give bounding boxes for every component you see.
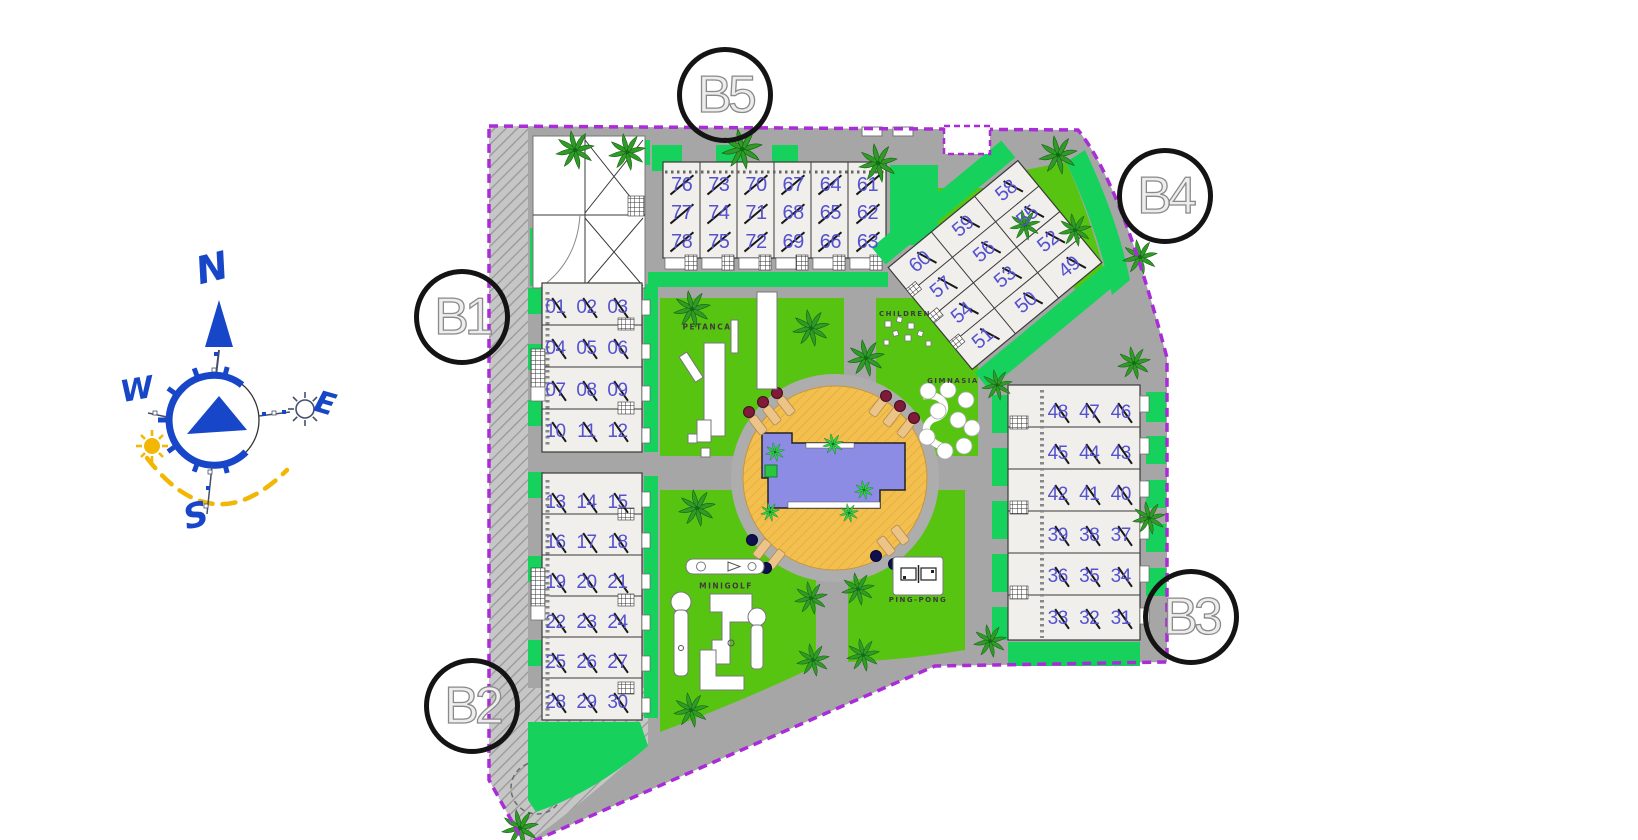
unit-number: 15 bbox=[607, 492, 627, 514]
unit-number: 69 bbox=[783, 231, 804, 254]
unit-cell: 48 bbox=[1042, 392, 1074, 433]
unit-cell: 16 bbox=[540, 523, 571, 563]
label-gimnasia: GIMNASIA bbox=[927, 377, 979, 385]
north-arrow bbox=[205, 300, 233, 347]
unit-number: 47 bbox=[1079, 402, 1099, 424]
unit-number: 40 bbox=[1111, 484, 1131, 506]
garden-b5-south bbox=[648, 272, 888, 287]
unit-cell: 14 bbox=[571, 483, 602, 523]
unit-number: 38 bbox=[1079, 525, 1099, 547]
block-badge-b1[interactable]: B1 bbox=[414, 269, 510, 365]
unit-number: 30 bbox=[607, 692, 627, 714]
unit-cell: 20 bbox=[571, 563, 602, 603]
unit-number: 14 bbox=[576, 492, 596, 514]
unit-cell: 37 bbox=[1105, 516, 1137, 557]
unit-number: 13 bbox=[545, 492, 565, 514]
unit-cell: 36 bbox=[1042, 557, 1074, 598]
unit-cell: 45 bbox=[1042, 433, 1074, 474]
unit-number: 28 bbox=[545, 692, 565, 714]
unit-cell: 21 bbox=[602, 563, 633, 603]
unit-number: 65 bbox=[820, 202, 841, 225]
unit-cell: 42 bbox=[1042, 474, 1074, 515]
unit-cell: 01 bbox=[540, 287, 571, 329]
unit-number: 29 bbox=[576, 692, 596, 714]
unit-cell: 63 bbox=[849, 228, 886, 257]
garden-b2-east bbox=[644, 476, 658, 718]
unit-cell: 09 bbox=[602, 370, 633, 412]
unit-cell: 12 bbox=[602, 412, 633, 454]
unit-cell: 76 bbox=[663, 171, 700, 200]
unit-cell: 15 bbox=[602, 483, 633, 523]
unit-cell: 24 bbox=[602, 603, 633, 643]
unit-number: 06 bbox=[607, 338, 627, 360]
unit-number: 21 bbox=[607, 572, 627, 594]
unit-number: 18 bbox=[607, 532, 627, 554]
unit-number: 09 bbox=[607, 380, 627, 402]
unit-cell: 13 bbox=[540, 483, 571, 523]
unit-cell: 62 bbox=[849, 200, 886, 229]
unit-cell: 71 bbox=[737, 200, 774, 229]
garden-b3-w4 bbox=[992, 554, 1008, 592]
unit-cell: 33 bbox=[1042, 598, 1074, 639]
unit-number: 03 bbox=[607, 297, 627, 319]
unit-number: 32 bbox=[1079, 608, 1099, 630]
unit-cell: 04 bbox=[540, 329, 571, 371]
unit-number: 24 bbox=[607, 612, 627, 634]
unit-cell: 46 bbox=[1105, 392, 1137, 433]
unit-cell: 72 bbox=[737, 228, 774, 257]
unit-cell: 44 bbox=[1074, 433, 1106, 474]
parasol bbox=[744, 407, 755, 418]
unit-cell: 19 bbox=[540, 563, 571, 603]
parasol bbox=[909, 413, 920, 424]
unit-number: 41 bbox=[1079, 484, 1099, 506]
unit-grid-b5: 767370676461777471686562787572696663 bbox=[663, 171, 886, 257]
unit-grid-b2: 131415161718192021222324252627282930 bbox=[540, 483, 633, 723]
unit-cell: 31 bbox=[1105, 598, 1137, 639]
unit-number: 61 bbox=[857, 174, 878, 197]
unit-cell: 26 bbox=[571, 643, 602, 683]
unit-number: 36 bbox=[1048, 566, 1068, 588]
unit-cell: 65 bbox=[812, 200, 849, 229]
parasol bbox=[895, 401, 906, 412]
label-petanca: PETANCA bbox=[682, 323, 731, 332]
unit-number: 20 bbox=[576, 572, 596, 594]
garden-b3-w2 bbox=[992, 448, 1008, 486]
unit-cell: 73 bbox=[700, 171, 737, 200]
garden-b3-w1 bbox=[992, 395, 1008, 433]
unit-number: 73 bbox=[708, 174, 729, 197]
unit-cell: 17 bbox=[571, 523, 602, 563]
parasol bbox=[881, 391, 892, 402]
unit-number: 67 bbox=[783, 174, 804, 197]
unit-cell: 25 bbox=[540, 643, 571, 683]
unit-cell: 43 bbox=[1105, 433, 1137, 474]
unit-number: 22 bbox=[545, 612, 565, 634]
unit-cell: 07 bbox=[540, 370, 571, 412]
pool-area bbox=[731, 374, 939, 582]
unit-cell: 06 bbox=[602, 329, 633, 371]
unit-cell: 28 bbox=[540, 683, 571, 723]
pool-planter bbox=[765, 465, 777, 477]
block-label: B3 bbox=[1163, 587, 1219, 647]
unit-number: 16 bbox=[545, 532, 565, 554]
block-badge-b3[interactable]: B3 bbox=[1143, 569, 1239, 665]
unit-cell: 08 bbox=[571, 370, 602, 412]
unit-cell: 66 bbox=[812, 228, 849, 257]
garden-b3-w3 bbox=[992, 501, 1008, 539]
site-plan-canvas: 767370676461777471686562787572696663 010… bbox=[0, 0, 1638, 840]
unit-cell: 67 bbox=[775, 171, 812, 200]
unit-number: 33 bbox=[1048, 608, 1068, 630]
unit-number: 11 bbox=[577, 421, 596, 443]
north-gate bbox=[944, 126, 990, 154]
unit-number: 77 bbox=[671, 202, 692, 225]
unit-cell: 02 bbox=[571, 287, 602, 329]
pool-step bbox=[788, 502, 880, 508]
unit-cell: 38 bbox=[1074, 516, 1106, 557]
block-label: B4 bbox=[1137, 166, 1193, 226]
unit-cell: 74 bbox=[700, 200, 737, 229]
unit-grid-b3: 484746454443424140393837363534333231 bbox=[1042, 392, 1137, 639]
block-label: B1 bbox=[434, 287, 490, 347]
unit-number: 49 bbox=[1054, 252, 1085, 283]
unit-cell: 23 bbox=[571, 603, 602, 643]
unit-cell: 22 bbox=[540, 603, 571, 643]
unit-number: 07 bbox=[545, 380, 565, 402]
unit-number: 78 bbox=[671, 231, 692, 254]
block-label: B5 bbox=[697, 65, 753, 125]
unit-number: 05 bbox=[576, 338, 596, 360]
unit-number: 51 bbox=[968, 323, 999, 354]
unit-cell: 11 bbox=[571, 412, 602, 454]
unit-number: 25 bbox=[545, 652, 565, 674]
unit-cell: 64 bbox=[812, 171, 849, 200]
unit-number: 31 bbox=[1111, 608, 1131, 630]
unit-number: 23 bbox=[576, 612, 596, 634]
parasol bbox=[747, 535, 758, 546]
unit-number: 63 bbox=[857, 231, 878, 254]
unit-number: 70 bbox=[745, 174, 766, 197]
unit-number: 04 bbox=[545, 338, 565, 360]
unit-number: 01 bbox=[545, 297, 565, 319]
block-badge-b4[interactable]: B4 bbox=[1117, 148, 1213, 244]
unit-number: 68 bbox=[783, 202, 804, 225]
unit-number: 19 bbox=[545, 572, 565, 594]
unit-number: 39 bbox=[1048, 525, 1068, 547]
parasol bbox=[871, 551, 882, 562]
unit-number: 44 bbox=[1079, 443, 1099, 465]
block-label: B2 bbox=[444, 676, 500, 736]
unit-number: 66 bbox=[820, 231, 841, 254]
unit-cell: 61 bbox=[849, 171, 886, 200]
unit-number: 50 bbox=[1011, 288, 1042, 319]
unit-number: 75 bbox=[708, 231, 729, 254]
parasol bbox=[758, 397, 769, 408]
unit-number: 10 bbox=[545, 421, 565, 443]
block-badge-b5[interactable]: B5 bbox=[677, 47, 773, 143]
unit-number: 46 bbox=[1111, 402, 1131, 424]
unit-number: 42 bbox=[1048, 484, 1068, 506]
driveway-hatch-west bbox=[489, 126, 528, 688]
unit-number: 48 bbox=[1048, 402, 1068, 424]
unit-number: 62 bbox=[857, 202, 878, 225]
unit-cell: 29 bbox=[571, 683, 602, 723]
block-badge-b2[interactable]: B2 bbox=[424, 658, 520, 754]
unit-cell: 32 bbox=[1074, 598, 1106, 639]
unit-number: 76 bbox=[671, 174, 692, 197]
ping-pong-table bbox=[893, 557, 943, 595]
unit-cell: 34 bbox=[1105, 557, 1137, 598]
unit-cell: 75 bbox=[700, 228, 737, 257]
unit-number: 17 bbox=[576, 532, 596, 554]
unit-number: 35 bbox=[1079, 566, 1099, 588]
unit-cell: 35 bbox=[1074, 557, 1106, 598]
unit-cell: 39 bbox=[1042, 516, 1074, 557]
site-plan-drawing bbox=[0, 0, 1638, 840]
unit-number: 08 bbox=[576, 380, 596, 402]
compass-west-label: W bbox=[118, 370, 157, 410]
unit-number: 34 bbox=[1111, 566, 1131, 588]
unit-number: 12 bbox=[607, 421, 627, 443]
unit-number: 64 bbox=[820, 174, 841, 197]
unit-cell: 03 bbox=[602, 287, 633, 329]
unit-number: 37 bbox=[1111, 525, 1131, 547]
unit-number: 27 bbox=[607, 652, 627, 674]
unit-cell: 18 bbox=[602, 523, 633, 563]
label-ping-pong: PING-PONG bbox=[889, 596, 947, 604]
unit-number: 43 bbox=[1111, 443, 1131, 465]
unit-number: 26 bbox=[576, 652, 596, 674]
unit-number: 45 bbox=[1048, 443, 1068, 465]
compass-rose bbox=[136, 300, 322, 514]
unit-cell: 27 bbox=[602, 643, 633, 683]
unit-cell: 70 bbox=[737, 171, 774, 200]
unit-number: 72 bbox=[745, 231, 766, 254]
unit-cell: 40 bbox=[1105, 474, 1137, 515]
unit-number: 71 bbox=[745, 202, 766, 225]
unit-grid-b1: 010203040506070809101112 bbox=[540, 287, 633, 453]
unit-cell: 69 bbox=[775, 228, 812, 257]
label-children: CHILDREN bbox=[879, 310, 931, 318]
unit-number: 74 bbox=[708, 202, 729, 225]
unit-cell: 47 bbox=[1074, 392, 1106, 433]
sun-icon-southwest bbox=[136, 430, 168, 462]
label-minigolf: MINIGOLF bbox=[699, 582, 753, 591]
unit-cell: 77 bbox=[663, 200, 700, 229]
unit-cell: 68 bbox=[775, 200, 812, 229]
unit-cell: 78 bbox=[663, 228, 700, 257]
unit-cell: 41 bbox=[1074, 474, 1106, 515]
unit-number: 02 bbox=[576, 297, 596, 319]
unit-cell: 05 bbox=[571, 329, 602, 371]
unit-cell: 10 bbox=[540, 412, 571, 454]
unit-cell: 30 bbox=[602, 683, 633, 723]
